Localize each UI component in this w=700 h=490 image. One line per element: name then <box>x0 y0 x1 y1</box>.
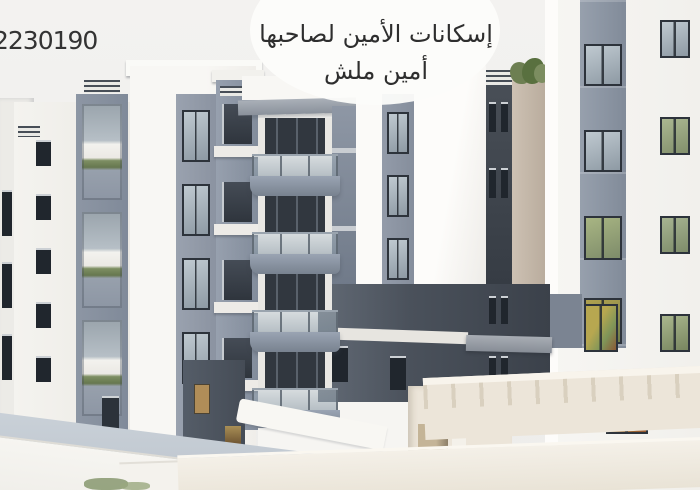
column-window <box>182 184 210 236</box>
lit-niche <box>225 426 241 444</box>
entry-door-wood <box>194 384 210 414</box>
right-facade-window <box>660 20 690 58</box>
caption: إسكانات الأمين لصاحبها أمين ملش <box>252 16 500 90</box>
dark-column-window <box>489 102 496 132</box>
louver-vent-left <box>18 126 40 137</box>
strip-window <box>584 216 622 260</box>
left-tower-window <box>36 302 51 328</box>
balcony-window-band <box>258 118 332 154</box>
balcony-window-band <box>258 274 332 310</box>
dark-column-window <box>501 102 508 132</box>
left-tower-window <box>36 356 51 382</box>
far-left-window <box>2 262 12 308</box>
balcony-window-band <box>258 196 332 232</box>
left-balcony-cell <box>82 104 122 200</box>
balcony-glass-railing <box>252 310 338 332</box>
balcony-glass-railing <box>252 154 338 176</box>
hedge-greenery <box>120 482 150 490</box>
left-balcony-cell <box>82 212 122 308</box>
phone-number: 2230190 <box>0 26 97 55</box>
band-window <box>390 356 406 390</box>
balcony-base-slab <box>250 254 340 274</box>
column-window <box>387 238 409 280</box>
caption-line-1: إسكانات الأمين لصاحبها <box>252 16 500 53</box>
right-facade-window <box>660 117 690 155</box>
column-window <box>387 175 409 217</box>
right-facade-window <box>660 216 690 254</box>
right-lower-gray-panel <box>548 294 582 348</box>
caption-line-2: أمين ملش <box>252 53 500 90</box>
far-left-window <box>2 334 12 380</box>
side-face-slab-tick <box>332 226 356 231</box>
louver-vent-balcony-cap <box>84 80 120 93</box>
strip-window <box>584 44 622 86</box>
balcony-base-slab <box>250 176 340 196</box>
center-white-corner-strip <box>356 84 382 286</box>
tan-side-wall <box>512 80 546 284</box>
side-face-slab-tick <box>332 148 356 153</box>
warm-lit-window <box>584 304 618 352</box>
strip-window <box>584 130 622 172</box>
balcony-base-slab <box>250 332 340 352</box>
terrace-parapet-far <box>423 366 700 440</box>
band-canopy-slab <box>466 335 552 353</box>
balcony-glass-railing <box>252 232 338 254</box>
column-window <box>387 112 409 154</box>
far-left-window <box>2 190 12 236</box>
column-window <box>182 258 210 310</box>
band-slit-window <box>501 296 508 324</box>
stripe-opening <box>222 260 252 300</box>
architectural-render-scene: إسكانات الأمين لصاحبها أمين ملش 2230190 <box>0 0 700 490</box>
column-window <box>182 110 210 162</box>
left-tower-window <box>36 140 51 166</box>
dark-column-window <box>489 168 496 198</box>
left-tower-window <box>36 248 51 274</box>
dark-column-window <box>501 168 508 198</box>
left-tower-window <box>36 194 51 220</box>
right-facade-window <box>660 314 690 352</box>
band-slit-window <box>489 296 496 324</box>
balcony-window-band <box>258 352 332 388</box>
stripe-opening <box>222 182 252 222</box>
